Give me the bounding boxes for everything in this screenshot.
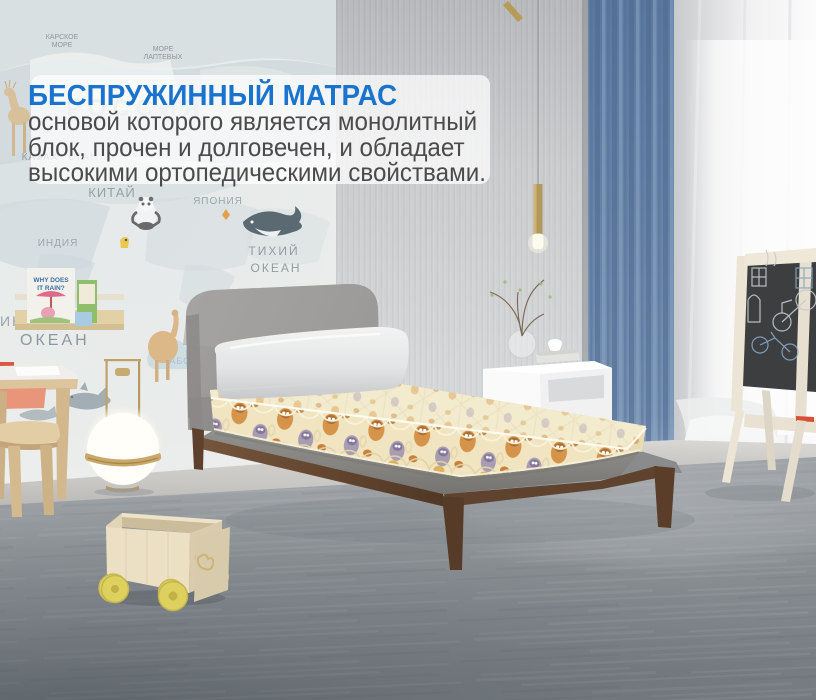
svg-text:ТИХИЙ: ТИХИЙ xyxy=(248,243,299,258)
svg-text:КИТАЙ: КИТАЙ xyxy=(88,185,135,200)
svg-text:ИНДИЯ: ИНДИЯ xyxy=(38,238,79,249)
svg-text:ЛАПТЕВЫХ: ЛАПТЕВЫХ xyxy=(144,54,183,61)
svg-text:КАРСКОЕ: КАРСКОЕ xyxy=(46,34,79,41)
svg-text:ОКЕАН: ОКЕАН xyxy=(20,332,90,349)
svg-text:IT RAIN?: IT RAIN? xyxy=(37,285,64,292)
svg-text:WHY DOES: WHY DOES xyxy=(33,277,69,284)
svg-text:МОРЕ: МОРЕ xyxy=(153,46,174,53)
svg-text:МОРЕ: МОРЕ xyxy=(52,42,73,49)
svg-text:ОКЕАН: ОКЕАН xyxy=(251,261,302,275)
svg-text:ЯПОНИЯ: ЯПОНИЯ xyxy=(193,196,243,207)
